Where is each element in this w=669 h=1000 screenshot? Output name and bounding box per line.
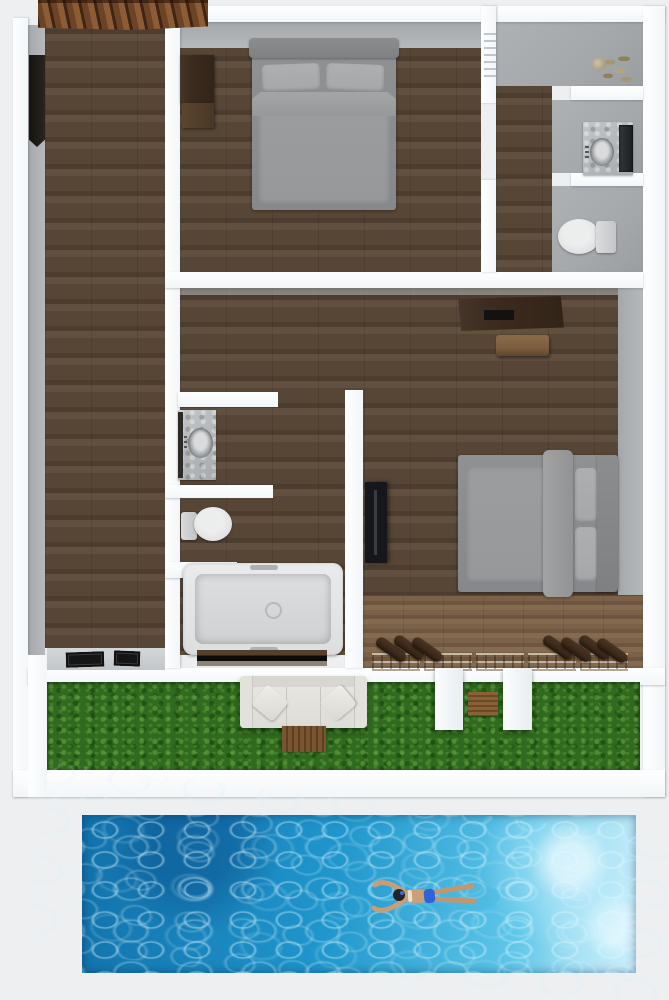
plant-foliage — [598, 52, 638, 86]
bathtub — [183, 563, 343, 655]
faucet-dots-left — [184, 436, 187, 448]
sofa-seat-divider-2 — [320, 687, 321, 728]
bath-hall-floor — [496, 86, 552, 272]
toilet-left-bowl — [194, 507, 232, 541]
bed-right-pillow-bottom — [575, 527, 597, 582]
swimmer-leg-lower — [430, 899, 474, 901]
wardrobe-shelf — [182, 103, 214, 128]
bathtub-threshold — [197, 650, 327, 666]
entry-strip — [47, 648, 165, 670]
door-mat-2 — [114, 651, 141, 667]
swimmer-arm-lower — [374, 900, 404, 910]
swimmer-head — [393, 889, 405, 901]
outdoor-sofa — [240, 676, 366, 728]
main-divider-wall — [165, 272, 643, 288]
stool — [496, 335, 549, 356]
bed-right-pillow-top — [575, 468, 597, 523]
swimmer-goggles — [400, 891, 404, 895]
plant-pot — [592, 58, 606, 70]
door-mat-1 — [66, 651, 105, 667]
floorplan-render — [0, 0, 669, 1000]
bed-top-pillow-right — [326, 63, 385, 93]
bathleft-wall-1 — [178, 392, 278, 407]
wardrobe — [180, 55, 214, 103]
towel-ladder — [484, 33, 496, 79]
sofa-arm-right — [354, 676, 367, 728]
bed-right-duvet — [466, 466, 550, 582]
toilet-top-right-tank — [596, 221, 616, 253]
vanity-left-edge — [178, 412, 183, 478]
console-item — [484, 310, 514, 320]
bed-top-pillow-left — [262, 63, 321, 93]
swimmer — [372, 870, 502, 930]
faucet-dots-top-right — [585, 146, 589, 158]
living-partition-wall — [345, 390, 363, 668]
divider-wall-face — [180, 288, 618, 295]
garden-pillar-left — [435, 668, 463, 730]
bathtub-faucet-top — [250, 565, 278, 570]
corner-plant — [590, 52, 642, 92]
tv-screen-line — [374, 490, 377, 555]
left-corridor-floor — [45, 22, 165, 648]
wall-tv — [365, 482, 387, 563]
sink-basin-top-right — [590, 138, 614, 166]
swimmer-bikini-top — [408, 890, 413, 902]
sofa-pillow-right — [319, 684, 357, 722]
sofa-wooden-mat — [282, 726, 326, 752]
outer-wall-top — [165, 6, 665, 22]
outer-wall-left — [13, 18, 28, 797]
swimming-pool — [82, 815, 636, 973]
sofa-pillow-left — [251, 684, 289, 722]
bath-wall-segment-b — [481, 180, 496, 272]
swimmer-bikini-bottom — [423, 888, 435, 903]
sofa-seat-divider-1 — [286, 687, 287, 728]
bed-right-duvet-fold — [543, 450, 573, 597]
bathtub-basin — [195, 574, 331, 644]
bed-top-headboard — [249, 38, 399, 58]
pillar-wooden-mat — [468, 692, 498, 716]
living-right-wall-face — [618, 288, 643, 595]
toilet-top-right-bowl — [558, 219, 600, 254]
sofa-arm-left — [240, 676, 253, 728]
bathtub-drain — [265, 602, 282, 619]
garden-pillar-right — [503, 668, 532, 730]
bed-right-headboard — [597, 456, 618, 592]
timber-roof-corner — [38, 0, 208, 30]
left-wall-window — [29, 55, 45, 147]
bed-top-duvet-fold — [252, 92, 396, 116]
sink-basin-left — [188, 428, 213, 458]
bathleft-wall-2 — [165, 485, 273, 498]
sofa-back — [240, 676, 366, 687]
vanity-mirror — [619, 125, 633, 172]
